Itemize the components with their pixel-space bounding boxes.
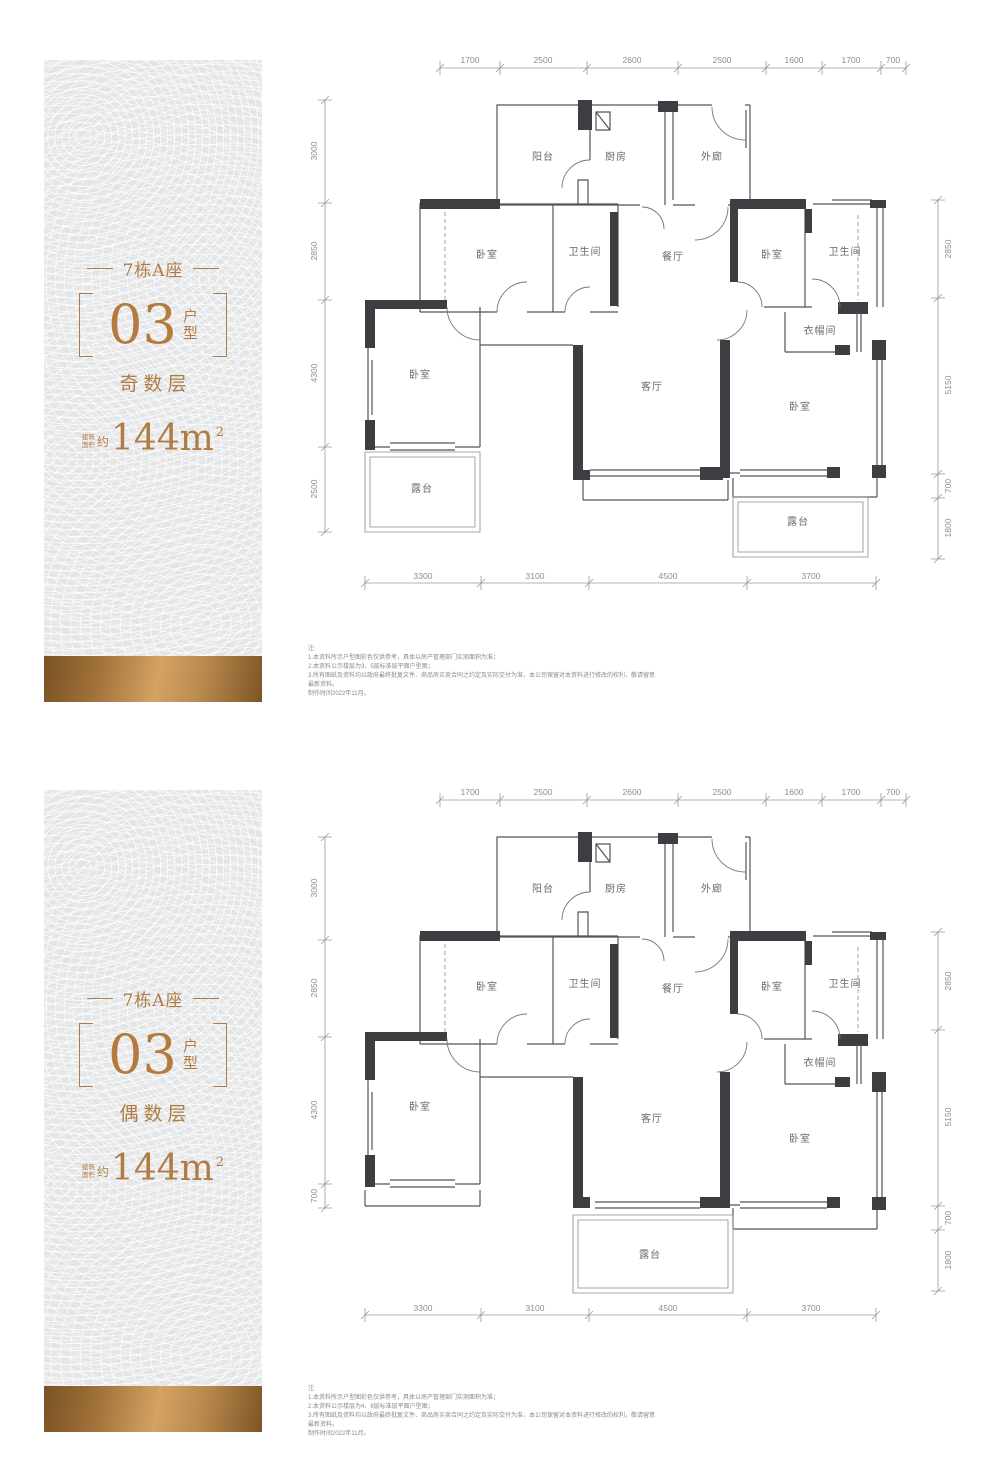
dim-lines xyxy=(318,61,945,590)
room-label-bedroom-c: 卧室 xyxy=(409,1100,431,1113)
brochure-page: { "panels": [ { "sidebar": { "building":… xyxy=(0,0,1000,1472)
floor-plan-even: 1700 2500 2600 2500 1600 1700 700 3300 3… xyxy=(295,777,975,1349)
room-label-bedroom-a: 卧室 xyxy=(476,980,498,993)
room-label-dining: 餐厅 xyxy=(662,982,684,995)
dim-right-1: 2850 xyxy=(943,239,953,258)
floor-plan-odd: 1700 2500 2600 2500 1600 1700 700 3300 3… xyxy=(295,45,975,617)
dim-right-3: 700 xyxy=(943,479,953,493)
dim-bottom-1: 3300 xyxy=(414,571,433,581)
room-label-bedroom-d: 卧室 xyxy=(789,400,811,413)
room-label-corridor: 外廊 xyxy=(701,150,723,163)
room-label-bedroom-a: 卧室 xyxy=(476,248,498,261)
building-title: 7栋A座 xyxy=(122,256,183,281)
building-title: 7栋A座 xyxy=(122,986,183,1011)
dim-bottom-1: 3300 xyxy=(414,1303,433,1313)
walls-upper xyxy=(420,100,886,314)
dim-lines xyxy=(318,793,945,1322)
sidebar-card: 7栋A座 03 户 型 奇数层 建筑 面积 xyxy=(44,60,262,702)
room-label-bath-a: 卫生间 xyxy=(569,245,602,258)
unit-row: 03 户 型 xyxy=(79,1023,227,1087)
room-label-kitchen: 厨房 xyxy=(605,150,627,163)
panel-odd-floors: 7栋A座 03 户 型 奇数层 建筑 面积 xyxy=(0,0,1000,736)
dim-bottom-2: 3100 xyxy=(526,1303,545,1313)
dim-top-7: 700 xyxy=(886,787,900,797)
gold-band xyxy=(44,1386,262,1432)
room-label-living: 客厅 xyxy=(641,1112,663,1125)
note-line-1: 1.本资料所示户型图彩色仅供参考，具体以房产管理部门实测面积为准； xyxy=(308,1394,660,1403)
dim-top-1: 1700 xyxy=(461,55,480,65)
dim-left-2: 2850 xyxy=(309,241,319,260)
note-title: 注: xyxy=(308,645,660,654)
building-title-row: 7栋A座 xyxy=(44,986,262,1011)
dim-top-3: 2600 xyxy=(623,55,642,65)
area-superscript: 2 xyxy=(216,425,224,440)
dim-left-4: 2500 xyxy=(309,479,319,498)
note-line-4: 制作时间2022年11月。 xyxy=(308,690,660,699)
area-row: 建筑 面积 约 144m 2 xyxy=(44,422,262,456)
dim-left-1: 3000 xyxy=(309,878,319,897)
area-prefix-line2: 面积 xyxy=(82,1172,95,1180)
unit-badge: 03 户 型 xyxy=(79,1023,227,1087)
dim-bottom-4: 3700 xyxy=(802,571,821,581)
dim-left-3: 4300 xyxy=(309,363,319,382)
area-prefix-line1: 建筑 xyxy=(82,1164,95,1172)
title-dash-left xyxy=(87,268,113,270)
title-dash-right xyxy=(193,268,219,270)
dim-left-3: 4300 xyxy=(309,1100,319,1119)
dim-right-2: 5150 xyxy=(943,375,953,394)
bracket-right xyxy=(213,293,227,357)
note-line-4: 制作时间2022年11月。 xyxy=(308,1430,660,1439)
sidebar-content: 7栋A座 03 户 型 偶数层 建筑 面积 xyxy=(44,790,262,1186)
note-line-3: 3.所有图纸及资料均以政府最终批复文件、商品房买卖合同之约定及实际交付为准，本公… xyxy=(308,1412,660,1430)
note-line-3: 3.所有图纸及资料均以政府最终批复文件、商品房买卖合同之约定及实际交付为准，本公… xyxy=(308,672,660,690)
dim-left-4: 700 xyxy=(309,1189,319,1203)
walls-lower xyxy=(365,1032,886,1293)
dim-right-4: 1800 xyxy=(943,518,953,537)
dim-top-2: 2500 xyxy=(534,787,553,797)
area-prefix-line2: 面积 xyxy=(82,442,95,450)
room-label-balcony: 阳台 xyxy=(532,150,554,163)
dim-top-5: 1600 xyxy=(785,787,804,797)
building-title-row: 7栋A座 xyxy=(44,256,262,281)
dim-right-3: 700 xyxy=(943,1211,953,1225)
dim-right-1: 2850 xyxy=(943,971,953,990)
room-label-terrace-left: 露台 xyxy=(411,482,433,495)
unit-row: 03 户 型 xyxy=(79,293,227,357)
gold-band xyxy=(44,656,262,702)
area-approx: 约 xyxy=(97,433,109,450)
dim-top-6: 1700 xyxy=(842,787,861,797)
room-label-bedroom-d: 卧室 xyxy=(789,1132,811,1145)
room-label-balcony: 阳台 xyxy=(532,882,554,895)
dim-right-2: 5150 xyxy=(943,1107,953,1126)
room-label-terrace-right: 露台 xyxy=(787,515,809,528)
room-label-cloakroom: 衣帽间 xyxy=(804,1056,837,1069)
dim-top-1: 1700 xyxy=(461,787,480,797)
unit-number: 03 xyxy=(108,1025,177,1085)
room-label-corridor: 外廊 xyxy=(701,882,723,895)
dim-bottom-3: 4500 xyxy=(659,571,678,581)
walls-upper xyxy=(420,832,886,1046)
unit-suffix: 户 型 xyxy=(183,308,198,342)
sidebar-content: 7栋A座 03 户 型 奇数层 建筑 面积 xyxy=(44,60,262,456)
unit-suffix-char-2: 型 xyxy=(183,325,198,342)
unit-suffix-char-2: 型 xyxy=(183,1055,198,1072)
dim-top-3: 2600 xyxy=(623,787,642,797)
dim-top-2: 2500 xyxy=(534,55,553,65)
room-label-bath-a: 卫生间 xyxy=(569,977,602,990)
dim-top-6: 1700 xyxy=(842,55,861,65)
room-label-kitchen: 厨房 xyxy=(605,882,627,895)
unit-suffix-char-1: 户 xyxy=(183,1038,198,1055)
panel-even-floors: 7栋A座 03 户 型 偶数层 建筑 面积 xyxy=(0,736,1000,1472)
area-prefix: 建筑 面积 xyxy=(82,434,95,449)
bracket-left xyxy=(79,293,93,357)
room-label-dining: 餐厅 xyxy=(662,250,684,263)
room-label-terrace: 露台 xyxy=(639,1248,661,1261)
note-line-2: 2.本资料公示楼层为4、6层标准层平面户型图； xyxy=(308,1403,660,1412)
note-line-2: 2.本资料公示楼层为3、5层标准层平面户型图； xyxy=(308,663,660,672)
area-superscript: 2 xyxy=(216,1155,224,1170)
note-title: 注: xyxy=(308,1385,660,1394)
title-dash-left xyxy=(87,998,113,1000)
unit-badge: 03 户 型 xyxy=(79,293,227,357)
area-prefix-line1: 建筑 xyxy=(82,434,95,442)
room-label-bedroom-c: 卧室 xyxy=(409,368,431,381)
unit-suffix: 户 型 xyxy=(183,1038,198,1072)
room-label-living: 客厅 xyxy=(641,380,663,393)
dim-bottom-2: 3100 xyxy=(526,571,545,581)
dim-bottom-4: 3700 xyxy=(802,1303,821,1313)
disclaimer-notes: 注: 1.本资料所示户型图彩色仅供参考，具体以房产管理部门实测面积为准； 2.本… xyxy=(308,1385,660,1439)
room-label-bedroom-b: 卧室 xyxy=(761,980,783,993)
note-line-1: 1.本资料所示户型图彩色仅供参考，具体以房产管理部门实测面积为准； xyxy=(308,654,660,663)
title-dash-right xyxy=(193,998,219,1000)
room-label-bedroom-b: 卧室 xyxy=(761,248,783,261)
floor-type-label: 偶数层 xyxy=(44,1099,262,1126)
dim-top-5: 1600 xyxy=(785,55,804,65)
room-label-bath-b: 卫生间 xyxy=(829,977,862,990)
room-label-bath-b: 卫生间 xyxy=(829,245,862,258)
disclaimer-notes: 注: 1.本资料所示户型图彩色仅供参考，具体以房产管理部门实测面积为准； 2.本… xyxy=(308,645,660,699)
area-prefix: 建筑 面积 xyxy=(82,1164,95,1179)
area-row: 建筑 面积 约 144m 2 xyxy=(44,1152,262,1186)
sidebar-card: 7栋A座 03 户 型 偶数层 建筑 面积 xyxy=(44,790,262,1432)
floor-type-label: 奇数层 xyxy=(44,369,262,396)
dim-top-4: 2500 xyxy=(713,55,732,65)
dim-top-7: 700 xyxy=(886,55,900,65)
dim-bottom-3: 4500 xyxy=(659,1303,678,1313)
area-approx: 约 xyxy=(97,1163,109,1180)
dim-left-2: 2850 xyxy=(309,978,319,997)
bracket-left xyxy=(79,1023,93,1087)
unit-number: 03 xyxy=(108,295,177,355)
dim-left-1: 3000 xyxy=(309,141,319,160)
dim-right-4: 1800 xyxy=(943,1250,953,1269)
area-value: 144m xyxy=(111,1152,214,1186)
dim-top-4: 2500 xyxy=(713,787,732,797)
room-label-cloakroom: 衣帽间 xyxy=(804,324,837,337)
unit-suffix-char-1: 户 xyxy=(183,308,198,325)
bracket-right xyxy=(213,1023,227,1087)
area-value: 144m xyxy=(111,422,214,456)
